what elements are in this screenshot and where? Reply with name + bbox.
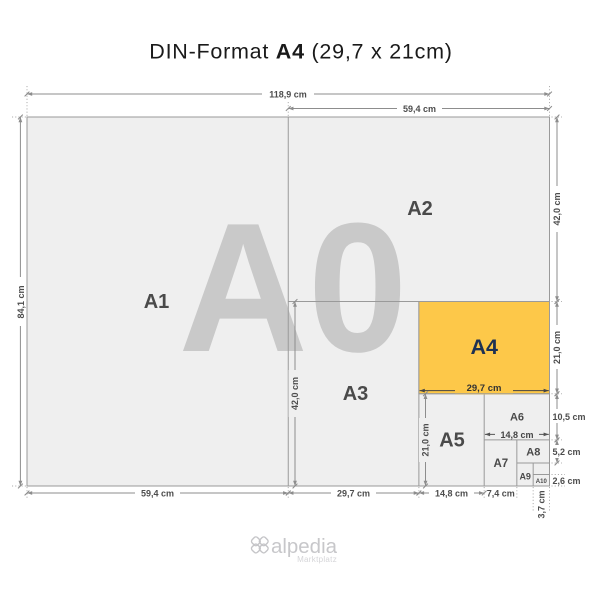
svg-text:A0: A0	[179, 184, 408, 390]
svg-text:A8: A8	[526, 447, 540, 459]
svg-text:A9: A9	[519, 472, 531, 482]
svg-text:A4: A4	[470, 335, 498, 359]
svg-text:A7: A7	[493, 458, 508, 470]
svg-text:A6: A6	[510, 412, 524, 424]
svg-text:Marktplatz: Marktplatz	[297, 555, 337, 564]
svg-text:42,0 cm: 42,0 cm	[552, 192, 562, 225]
svg-text:DIN-Format A4 (29,7 x 21cm): DIN-Format A4 (29,7 x 21cm)	[149, 40, 452, 64]
svg-text:10,5 cm: 10,5 cm	[553, 412, 586, 422]
svg-text:29,7 cm: 29,7 cm	[337, 488, 370, 498]
svg-text:A3: A3	[343, 383, 369, 405]
svg-text:21,0 cm: 21,0 cm	[421, 423, 431, 456]
svg-text:59,4 cm: 59,4 cm	[403, 104, 436, 114]
svg-text:118,9 cm: 118,9 cm	[269, 89, 307, 99]
svg-text:29,7 cm: 29,7 cm	[467, 383, 502, 394]
svg-text:59,4 cm: 59,4 cm	[141, 488, 174, 498]
svg-text:14,8 cm: 14,8 cm	[500, 430, 533, 440]
svg-text:5,2 cm: 5,2 cm	[553, 447, 581, 457]
svg-text:A2: A2	[407, 198, 433, 220]
svg-text:A1: A1	[144, 291, 170, 313]
svg-text:21,0 cm: 21,0 cm	[552, 331, 562, 364]
svg-text:42,0 cm: 42,0 cm	[290, 377, 300, 410]
svg-text:A10: A10	[536, 479, 548, 485]
svg-text:3,7 cm: 3,7 cm	[536, 490, 546, 518]
svg-text:84,1 cm: 84,1 cm	[16, 285, 26, 318]
svg-text:14,8 cm: 14,8 cm	[435, 488, 468, 498]
svg-text:A5: A5	[439, 430, 465, 452]
svg-text:2,6 cm: 2,6 cm	[553, 476, 581, 486]
svg-text:7,4 cm: 7,4 cm	[487, 488, 515, 498]
